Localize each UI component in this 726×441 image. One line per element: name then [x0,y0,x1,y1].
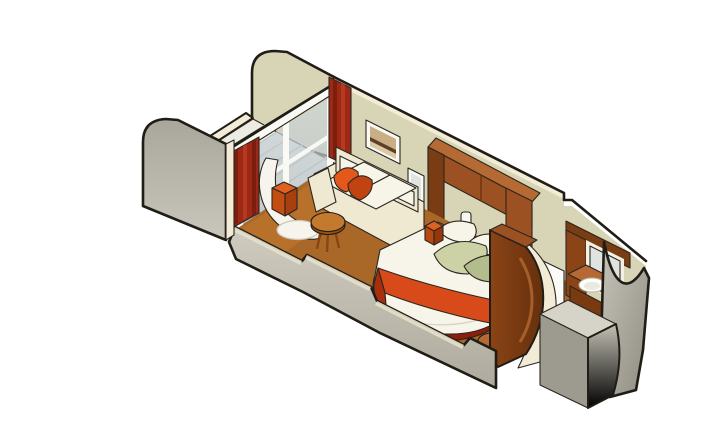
partition-left-edge [226,140,234,240]
curtain-left-pleat-dark [234,149,238,225]
stateroom-cutaway-illustration [40,16,726,425]
curtain-left-pleat-dark2 [252,139,256,216]
partition-left-face [143,119,226,240]
ottoman [272,182,297,216]
bathroom-sink-basin [584,282,600,290]
stateroom-scene [40,16,726,425]
reading-lamp [425,221,443,245]
curtain-left-pleat-light [243,144,247,220]
side-table-top [311,213,345,232]
